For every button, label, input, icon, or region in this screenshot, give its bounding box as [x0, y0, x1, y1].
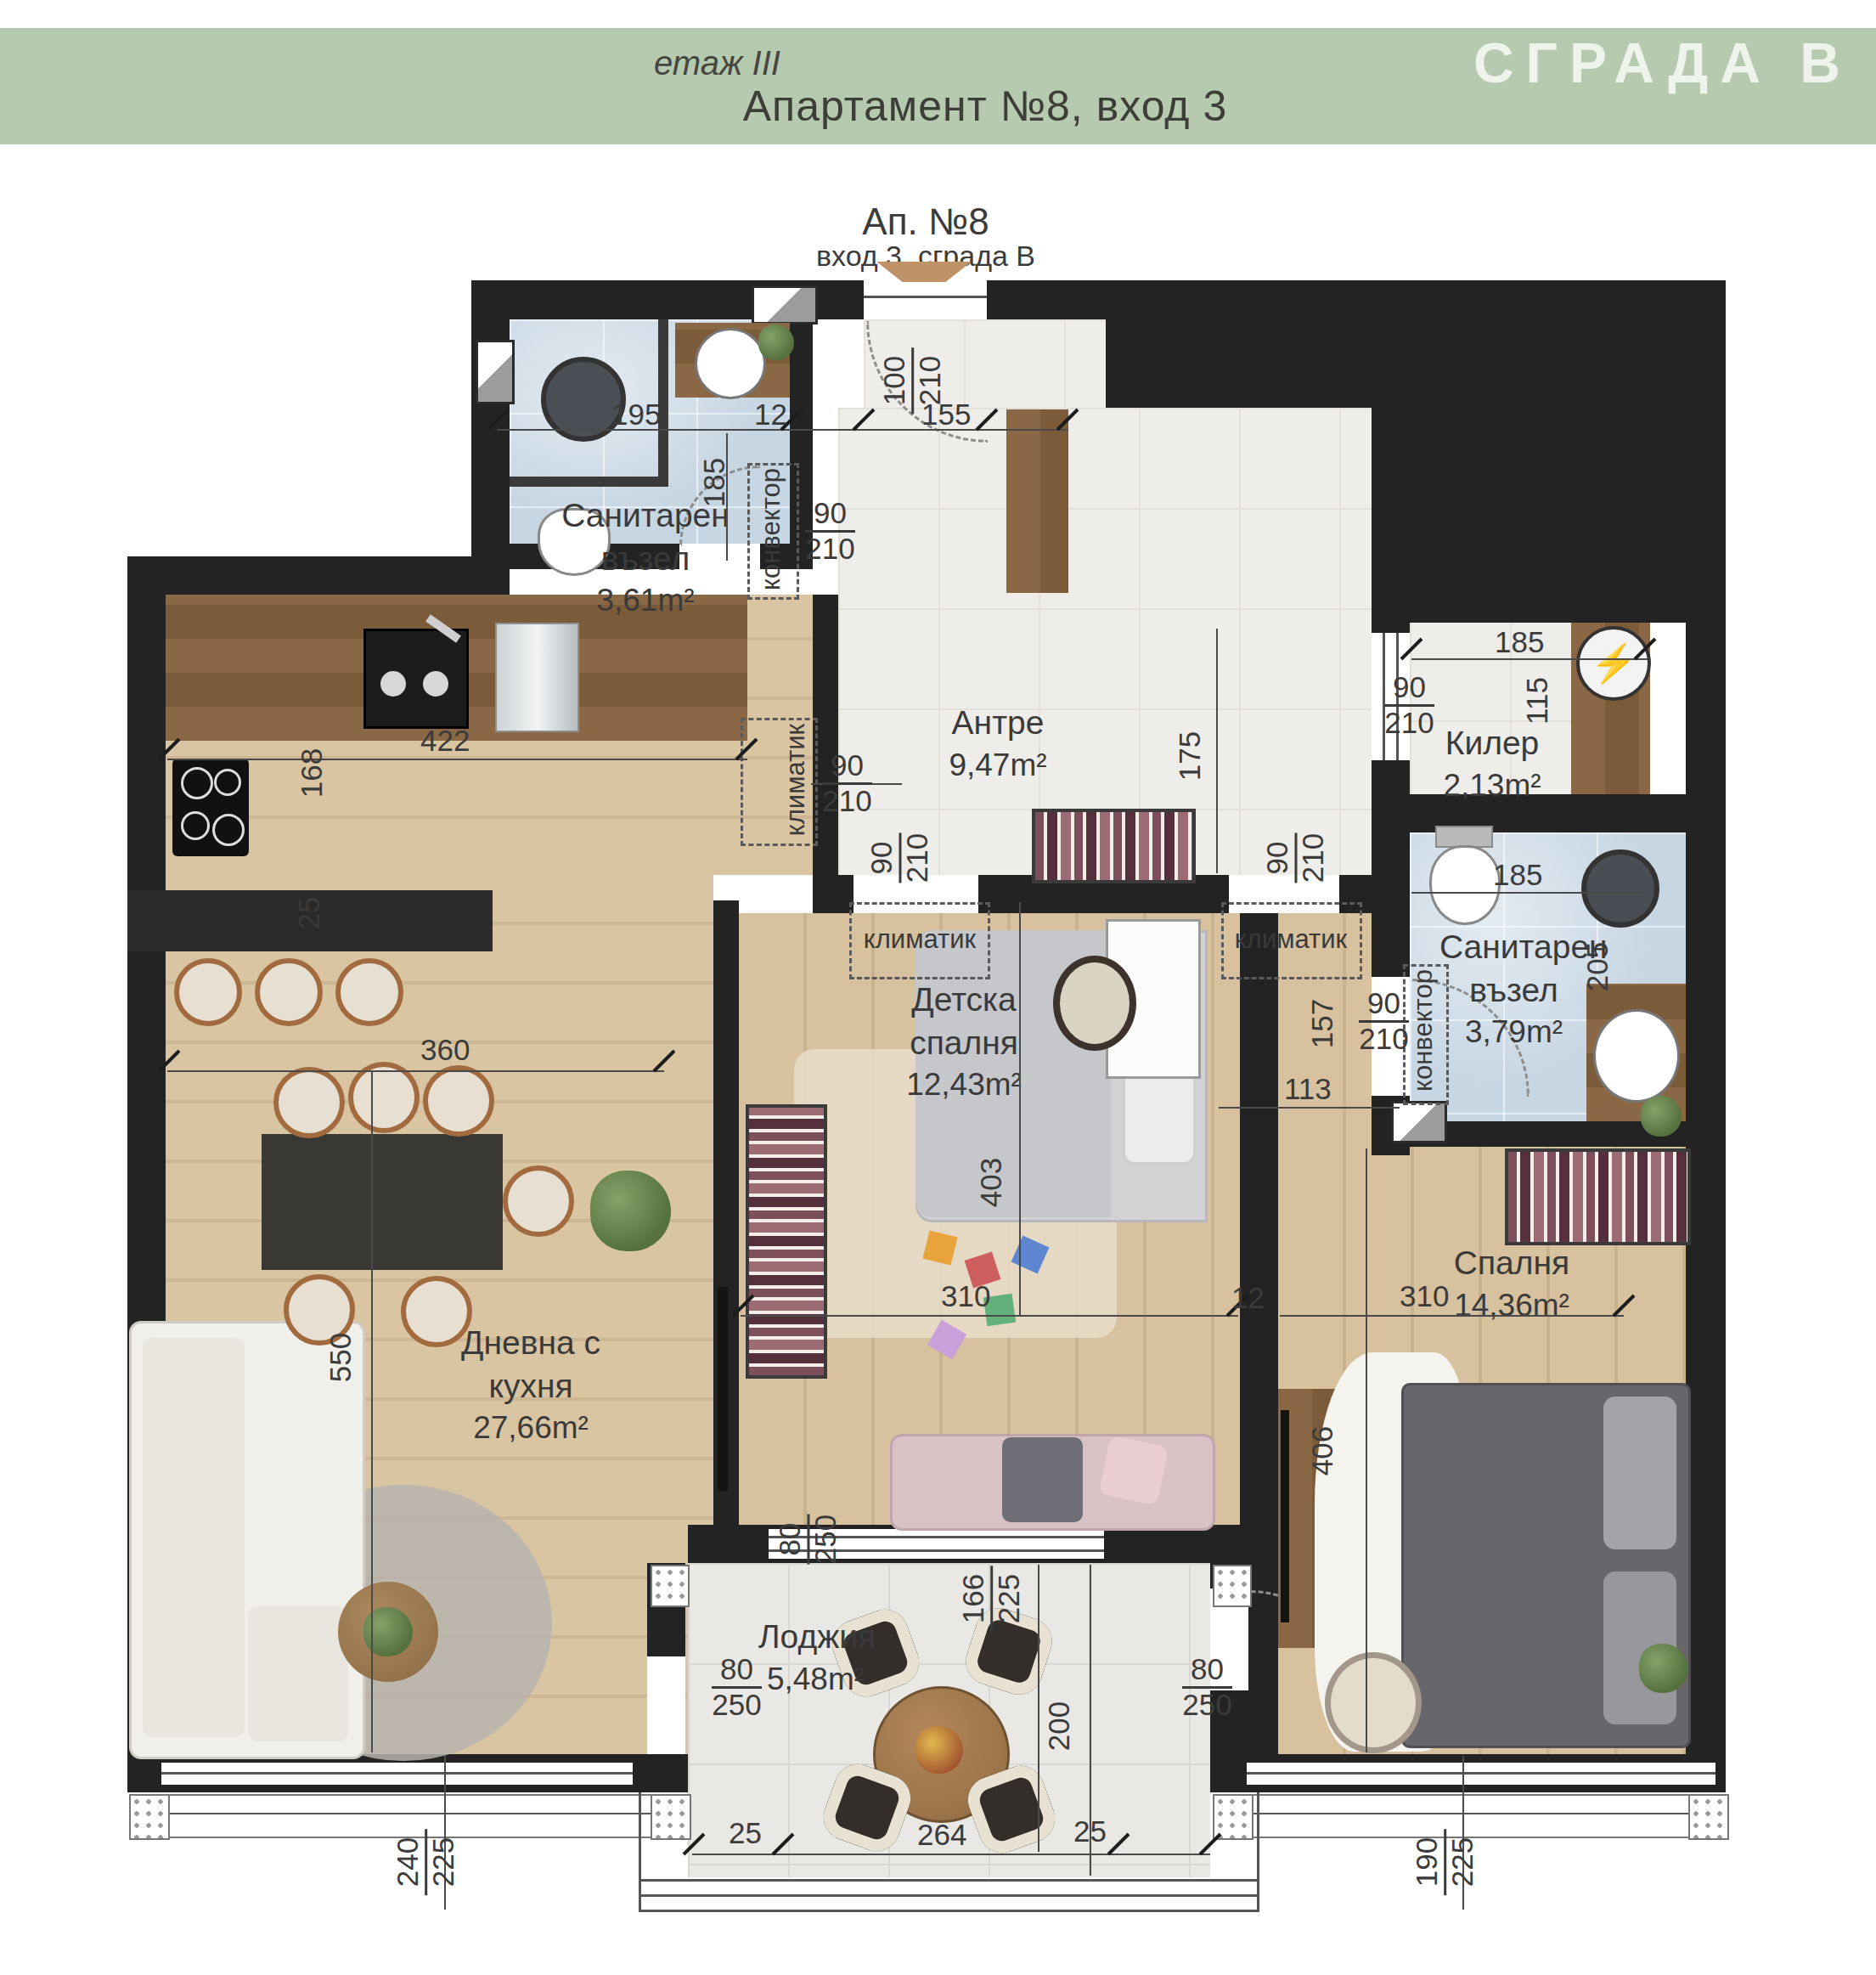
plant-icon: [758, 324, 794, 360]
sofa-cushions: [143, 1338, 245, 1737]
washing-machine-icon: ⚡: [1576, 626, 1651, 701]
bedroom-wardrobe: [1505, 1148, 1691, 1245]
dim-185: 185: [1493, 858, 1542, 892]
armchair: [1325, 1652, 1422, 1753]
room-label-hall: Антре 9,47m²: [909, 702, 1087, 786]
dim-window-190-225: 190 225: [1411, 1829, 1479, 1895]
dim-door-80-250: 80 250: [774, 1515, 842, 1565]
plant-icon: [1641, 1096, 1682, 1137]
dim-90: 90: [1359, 987, 1409, 1023]
dim-90: 90: [822, 749, 872, 785]
room-name: Антре: [909, 702, 1087, 745]
dim-185: 185: [697, 458, 731, 507]
room-name: Спалня: [1444, 1242, 1580, 1285]
room-name: Санитарен възел: [1439, 926, 1588, 1012]
ac-label: климатик: [780, 716, 811, 844]
apartment-title: Апартамент №8, вход 3: [688, 82, 1282, 131]
living-loggia-door-opening: [647, 1656, 685, 1754]
dim-185: 185: [1495, 625, 1544, 659]
dim-door-90-210: 90 210: [1384, 671, 1434, 739]
room-label-bath1: Санитарен възел 3,61m²: [544, 494, 747, 621]
pillow: [1098, 1435, 1169, 1505]
dining-chair: [423, 1065, 494, 1137]
dim-12: 12: [754, 398, 787, 432]
room-label-bath2: Санитарен възел 3,79m²: [1439, 926, 1588, 1052]
shaft-window-icon: [752, 285, 818, 324]
bar-stool: [255, 958, 323, 1026]
dim-25: 25: [1073, 1814, 1107, 1848]
dining-chair: [273, 1067, 345, 1138]
pillow: [1123, 1066, 1196, 1165]
entrance-apartment-label: Ап. №8: [815, 200, 1036, 243]
room-name: Дневна с кухня: [425, 1322, 637, 1408]
dim-12: 12: [1231, 1281, 1265, 1315]
entrance-door-line: [864, 296, 987, 298]
dim-line: [1216, 629, 1218, 873]
dim-168: 168: [295, 748, 329, 798]
dim-line: [371, 1070, 373, 1752]
burner-icon: [212, 814, 245, 846]
dim-250: 250: [712, 1689, 761, 1722]
dim-210: 210: [1384, 707, 1434, 740]
dim-210: 210: [914, 356, 947, 405]
dim-80: 80: [774, 1515, 809, 1565]
bath1-sink: [695, 328, 766, 399]
building-label: СГРАДА В: [1411, 31, 1852, 95]
dim-225: 225: [993, 1574, 1026, 1623]
dim-157: 157: [1305, 999, 1339, 1048]
loggia-railing: [639, 1910, 1259, 1912]
wall: [813, 875, 853, 913]
entrance-door-opening: [864, 282, 987, 318]
plant-icon: [590, 1171, 671, 1251]
dim-25: 25: [292, 897, 326, 930]
dining-table: [262, 1134, 503, 1270]
room-name: Килер: [1420, 722, 1564, 765]
dim-422: 422: [420, 724, 470, 758]
dim-entrance-100-210: 100 210: [878, 347, 946, 414]
insulation-hatch: [1688, 1794, 1729, 1840]
toilet-icon: [1429, 845, 1501, 925]
kids-sofa-throw: [1002, 1437, 1083, 1522]
plant-icon: [1639, 1644, 1688, 1693]
ac-label: климатик: [856, 924, 983, 955]
dining-chair: [503, 1165, 574, 1237]
dim-door-80-250: 80 250: [1182, 1653, 1232, 1721]
wall: [1372, 408, 1726, 623]
dim-line: [692, 1854, 1210, 1855]
convector-label: конвектор: [756, 466, 786, 593]
bedroom-sill-line: [1223, 1813, 1726, 1814]
room-name: Детска спалня: [862, 979, 1066, 1064]
wall: [1372, 760, 1410, 977]
burner-icon: [214, 769, 241, 796]
dim-210: 210: [805, 533, 854, 566]
tv-icon: [1281, 1410, 1289, 1622]
room-area: 3,61m²: [544, 580, 747, 621]
dim-line: [1019, 902, 1021, 1315]
fridge: [495, 623, 579, 732]
dim-25: 25: [729, 1816, 762, 1850]
dim-window-240-225: 240 225: [392, 1829, 459, 1895]
burner-icon: [181, 767, 213, 799]
dim-200: 200: [1042, 1701, 1076, 1751]
dining-chair: [348, 1062, 420, 1133]
room-area: 5,48m²: [758, 1659, 873, 1700]
sink-drain-icon: [423, 671, 448, 697]
hall-closet: [1032, 809, 1196, 883]
dim-225: 225: [1446, 1837, 1479, 1887]
flowers-icon: [915, 1726, 963, 1774]
dim-door-90-210: 90 210: [1261, 833, 1329, 883]
dim-195: 195: [611, 398, 661, 432]
dim-190: 190: [1411, 1829, 1446, 1895]
dim-door-90-210: 90 210: [805, 497, 855, 565]
dim-210: 210: [1359, 1023, 1408, 1056]
wall: [987, 280, 1108, 319]
dim-door-90-210: 90 210: [865, 833, 933, 883]
bar-stool: [335, 958, 403, 1026]
room-label-kids: Детска спалня 12,43m²: [862, 979, 1066, 1105]
bar-stool: [174, 958, 242, 1026]
loggia-railing: [639, 1894, 1259, 1897]
dim-line: [741, 1315, 1238, 1317]
dim-window-166-225: 166 225: [957, 1566, 1025, 1632]
dim-210: 210: [822, 785, 871, 818]
kids-wardrobe: [746, 1104, 827, 1379]
burner-icon: [181, 811, 210, 840]
dim-210: 210: [1297, 833, 1330, 883]
dim-90: 90: [865, 833, 901, 883]
room-name: Санитарен възел: [544, 494, 747, 580]
floor-label: етаж III: [654, 44, 960, 82]
living-window-line: [161, 1772, 633, 1775]
room-label-living: Дневна с кухня 27,66m²: [425, 1322, 637, 1448]
dim-90: 90: [1261, 833, 1297, 883]
bedroom-window-line: [1247, 1772, 1715, 1775]
dim-225: 225: [427, 1837, 460, 1887]
floor-plan-page: етаж III Апартамент №8, вход 3 СГРАДА В …: [0, 0, 1876, 1975]
dim-210: 210: [901, 833, 934, 883]
kitchen-sink: [363, 629, 469, 729]
living-sill-line: [140, 1813, 671, 1814]
dim-door-90-210: 90 210: [1359, 987, 1409, 1055]
dim-115: 115: [1520, 677, 1554, 725]
tv-icon: [718, 1287, 728, 1491]
dim-line: [167, 759, 747, 760]
dim-550: 550: [324, 1333, 358, 1382]
dim-line: [1038, 1565, 1039, 1852]
dim-166: 166: [957, 1566, 993, 1632]
shower-head-icon: [1581, 849, 1659, 928]
room-label-storage: Килер 2,13m²: [1420, 722, 1564, 806]
dim-250: 250: [1182, 1689, 1231, 1722]
dim-90: 90: [1384, 671, 1434, 707]
room-label-bedroom: Спалня 14,36m²: [1444, 1242, 1580, 1326]
insulation-hatch: [129, 1794, 170, 1840]
dim-175: 175: [1173, 731, 1207, 781]
dim-113: 113: [1284, 1072, 1332, 1106]
dim-line: [1411, 892, 1646, 894]
dim-310: 310: [1400, 1279, 1449, 1313]
insulation-hatch: [651, 1794, 691, 1840]
wall: [1686, 408, 1726, 1792]
dim-door-90-210: 90 210: [822, 749, 872, 817]
room-name: Лоджия: [758, 1616, 873, 1659]
entry-wardrobe: [1006, 409, 1068, 593]
pillow: [1603, 1397, 1676, 1549]
dim-360: 360: [420, 1033, 470, 1067]
room-area: 9,47m²: [909, 745, 1087, 786]
loggia-railing-post: [1257, 1792, 1259, 1912]
convector-label: конвектор: [1408, 967, 1439, 1094]
dim-264: 264: [917, 1818, 966, 1852]
wall: [127, 556, 471, 595]
dim-90: 90: [805, 497, 855, 533]
insulation-hatch: [1213, 1565, 1252, 1607]
dim-80: 80: [712, 1653, 762, 1689]
insulation-hatch: [651, 1565, 690, 1607]
dim-100: 100: [878, 347, 914, 414]
dim-80: 80: [1182, 1653, 1232, 1689]
wall: [1372, 623, 1410, 633]
room-area: 14,36m²: [1444, 1285, 1580, 1326]
room-area: 3,79m²: [1439, 1012, 1588, 1052]
dim-line: [1366, 1148, 1367, 1752]
room-area: 27,66m²: [425, 1408, 637, 1448]
room-area: 12,43m²: [862, 1064, 1066, 1105]
hall-floor: [838, 408, 1372, 875]
room-label-loggia: Лоджия 5,48m²: [758, 1616, 873, 1700]
sofa-chaise: [248, 1605, 348, 1741]
dim-406: 406: [1305, 1426, 1339, 1476]
dim-line: [1280, 1315, 1624, 1317]
bath2-sink: [1593, 1009, 1680, 1103]
wall: [1106, 280, 1726, 408]
loggia-railing-post: [639, 1792, 641, 1912]
sink-drain-icon: [380, 671, 406, 697]
room-area: 2,13m²: [1420, 765, 1564, 806]
dim-240: 240: [392, 1829, 427, 1895]
loggia-railing: [639, 1879, 1259, 1882]
ac-label: климатик: [1227, 924, 1355, 955]
dim-403: 403: [974, 1158, 1008, 1207]
dim-door-80-250: 80 250: [712, 1653, 762, 1721]
dim-250: 250: [809, 1515, 842, 1564]
dim-line: [167, 1070, 664, 1072]
dim-310: 310: [941, 1279, 990, 1313]
dim-line: [1219, 1107, 1400, 1109]
dim-205: 205: [1580, 942, 1614, 991]
